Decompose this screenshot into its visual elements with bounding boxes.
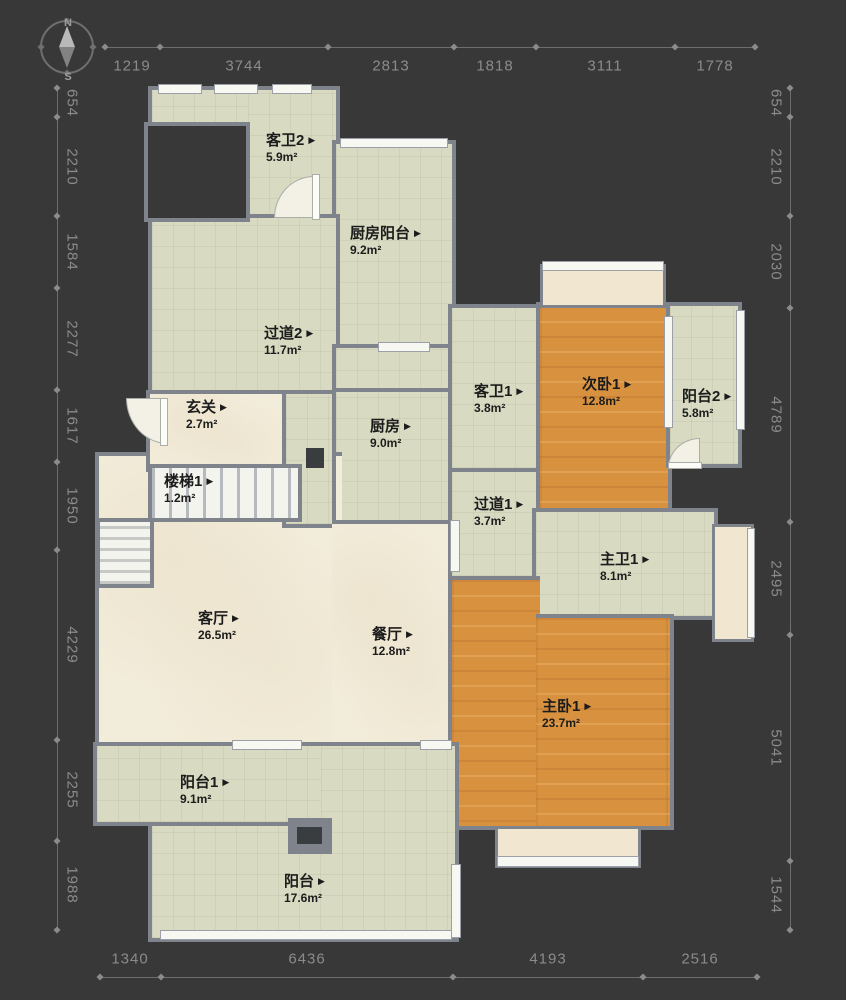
floor-corridor-2 bbox=[148, 214, 340, 398]
column-box bbox=[306, 448, 324, 468]
dim-top-2: 2813 bbox=[372, 58, 409, 75]
dim-left-3: 2277 bbox=[64, 320, 81, 357]
room-arrow-icon: ▶ bbox=[206, 476, 213, 486]
room-arrow-icon: ▶ bbox=[404, 421, 411, 431]
room-label-kitchen[interactable]: 厨房▶ 9.0m² bbox=[370, 419, 411, 450]
room-label-master-bath[interactable]: 主卫1▶ 8.1m² bbox=[600, 552, 649, 583]
window-master-bath-bay bbox=[747, 528, 755, 638]
compass-south-label: S bbox=[64, 71, 71, 83]
ruler-top-line bbox=[105, 47, 755, 48]
room-label-balcony-2[interactable]: 阳台2▶ 5.8m² bbox=[682, 389, 731, 420]
room-arrow-icon: ▶ bbox=[724, 391, 731, 401]
window-top-1 bbox=[158, 84, 202, 94]
room-label-guest-bath-2[interactable]: 客卫2▶ 5.9m² bbox=[266, 133, 315, 164]
door-leaf-guest-bath-2 bbox=[312, 174, 320, 220]
room-label-balcony[interactable]: 阳台▶ 17.6m² bbox=[284, 874, 325, 905]
dim-top-5: 1778 bbox=[696, 58, 733, 75]
room-label-kitchen-balcony[interactable]: 厨房阳台▶ 9.2m² bbox=[350, 226, 421, 257]
room-arrow-icon: ▶ bbox=[642, 554, 649, 564]
window-balcony-right-wall bbox=[451, 864, 461, 938]
dim-top-1: 3744 bbox=[225, 58, 262, 75]
room-label-guest-bath-1[interactable]: 客卫1▶ 3.8m² bbox=[474, 384, 523, 415]
window-master-bay-sill bbox=[497, 856, 639, 867]
room-arrow-icon: ▶ bbox=[624, 379, 631, 389]
room-arrow-icon: ▶ bbox=[222, 777, 229, 787]
ruler-bottom-line bbox=[100, 977, 757, 978]
dim-left-1: 2210 bbox=[64, 148, 81, 185]
room-label-foyer[interactable]: 玄关▶ 2.7m² bbox=[186, 400, 227, 431]
room-arrow-icon: ▶ bbox=[306, 328, 313, 338]
window-balcony-2-right bbox=[736, 310, 745, 430]
room-arrow-icon: ▶ bbox=[318, 876, 325, 886]
dim-left-5: 1950 bbox=[64, 487, 81, 524]
room-arrow-icon: ▶ bbox=[584, 701, 591, 711]
door-leaf-entry bbox=[160, 398, 168, 446]
dim-left-0: 654 bbox=[64, 89, 81, 117]
window-balcony-bottom bbox=[160, 930, 452, 940]
dim-bottom-3: 2516 bbox=[681, 951, 718, 968]
dim-left-6: 4229 bbox=[64, 626, 81, 663]
dim-bottom-0: 1340 bbox=[111, 951, 148, 968]
dim-right-6: 1544 bbox=[768, 876, 785, 913]
light-well bbox=[144, 122, 250, 222]
room-label-stairs-1[interactable]: 楼梯1▶ 1.2m² bbox=[164, 474, 213, 505]
window-bedroom2-balcony2 bbox=[664, 316, 673, 428]
opening-living-balcony1 bbox=[232, 740, 302, 750]
dim-left-7: 2255 bbox=[64, 771, 81, 808]
window-kitchen-balcony bbox=[340, 138, 448, 148]
room-arrow-icon: ▶ bbox=[232, 613, 239, 623]
compass-icon: N S bbox=[36, 14, 98, 80]
window-top-3 bbox=[272, 84, 312, 94]
room-arrow-icon: ▶ bbox=[414, 228, 421, 238]
dim-right-1: 2210 bbox=[768, 148, 785, 185]
room-label-balcony-1[interactable]: 阳台1▶ 9.1m² bbox=[180, 775, 229, 806]
dim-right-3: 4789 bbox=[768, 396, 785, 433]
compass-north-label: N bbox=[64, 17, 72, 29]
door-leaf-balcony-2 bbox=[668, 462, 702, 469]
floor-plan-canvas: N S 客卫2▶ bbox=[0, 0, 846, 1000]
room-arrow-icon: ▶ bbox=[516, 499, 523, 509]
room-arrow-icon: ▶ bbox=[516, 386, 523, 396]
dim-bottom-2: 4193 bbox=[529, 951, 566, 968]
compass-needle-south bbox=[59, 47, 75, 68]
dim-left-4: 1617 bbox=[64, 407, 81, 444]
opening-dining-corridor1 bbox=[450, 520, 460, 572]
window-top-2 bbox=[214, 84, 258, 94]
floor-master-bedroom-a bbox=[448, 576, 540, 830]
room-label-living[interactable]: 客厅▶ 26.5m² bbox=[198, 611, 239, 642]
room-arrow-icon: ▶ bbox=[220, 402, 227, 412]
dim-left-2: 1584 bbox=[64, 233, 81, 270]
room-arrow-icon: ▶ bbox=[308, 135, 315, 145]
room-label-corridor-1[interactable]: 过道1▶ 3.7m² bbox=[474, 497, 523, 528]
room-label-bedroom-2[interactable]: 次卧1▶ 12.8m² bbox=[582, 377, 631, 408]
dim-top-4: 3111 bbox=[587, 58, 622, 75]
dim-bottom-1: 6436 bbox=[288, 951, 325, 968]
compass-needle-north bbox=[59, 26, 75, 47]
dim-right-0: 654 bbox=[768, 89, 785, 117]
floor-balcony-right bbox=[321, 742, 459, 942]
stairs-flight-lower bbox=[96, 518, 154, 588]
dim-right-4: 2495 bbox=[768, 560, 785, 597]
dim-left-8: 1988 bbox=[64, 866, 81, 903]
dim-right-5: 5041 bbox=[768, 729, 785, 766]
room-label-master-bedroom[interactable]: 主卧1▶ 23.7m² bbox=[542, 699, 591, 730]
room-label-dining[interactable]: 餐厅▶ 12.8m² bbox=[372, 627, 413, 658]
opening-dining-balcony bbox=[420, 740, 452, 750]
flue-box bbox=[297, 827, 322, 844]
dim-top-3: 1818 bbox=[476, 58, 513, 75]
room-arrow-icon: ▶ bbox=[406, 629, 413, 639]
dim-right-2: 2030 bbox=[768, 243, 785, 280]
floor-kitchen bbox=[332, 388, 456, 528]
window-kitchen-pass bbox=[378, 342, 430, 352]
window-bedroom-2-bay bbox=[542, 261, 664, 271]
room-label-corridor-2[interactable]: 过道2▶ 11.7m² bbox=[264, 326, 313, 357]
dim-top-0: 1219 bbox=[113, 58, 150, 75]
floor-balcony-2 bbox=[666, 302, 742, 468]
